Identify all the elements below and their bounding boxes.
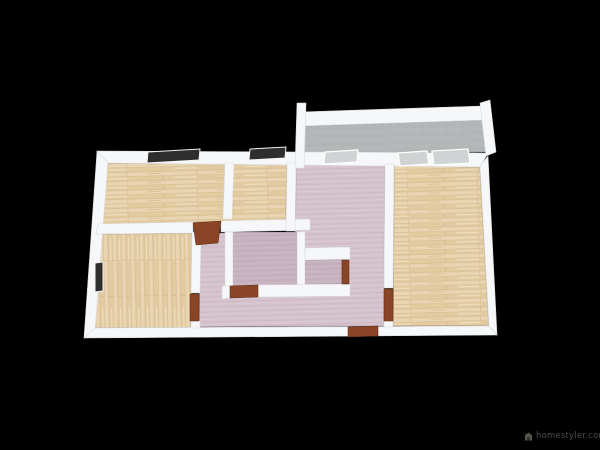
window-top-left-1 (147, 149, 200, 163)
door-entrance (348, 326, 378, 337)
inner-room-west-wall (225, 232, 233, 288)
right-room-west-wall-upper (384, 164, 394, 288)
door-bottom-left-room (190, 294, 199, 321)
floorplan-3d-view (0, 0, 600, 450)
inner-room-south-wall-west (222, 286, 230, 299)
door-alcove (342, 260, 349, 284)
top-rooms-divider-wall (223, 163, 234, 219)
alcove-floor (305, 259, 342, 285)
mid-wall-east (221, 219, 310, 232)
mid-wall-west (96, 222, 193, 234)
room-right-floor (393, 165, 489, 326)
left-room-east-wall-lower (191, 321, 200, 328)
alcove-north-wall (305, 247, 350, 260)
door-inner-room (230, 285, 258, 298)
watermark-text: homestyler.com (536, 430, 600, 443)
window-right-1 (398, 151, 429, 166)
door-hall-north (193, 221, 221, 245)
window-corridor (324, 150, 358, 164)
balcony-left-post (295, 103, 306, 168)
window-top-left-2 (249, 147, 286, 160)
room-top-left-floor (99, 163, 287, 225)
window-left-wall (95, 262, 103, 292)
render-canvas: homestyler.com (0, 0, 600, 450)
watermark: homestyler.com (524, 430, 600, 443)
door-right-room (384, 289, 393, 321)
room-bottom-left-floor (94, 233, 192, 328)
right-room-west-wall-lower (384, 321, 393, 327)
inner-room-east-wall (297, 232, 305, 288)
outer-wall-bottom (84, 326, 497, 338)
inner-room-south-wall-east (258, 284, 350, 297)
inner-room-floor (233, 232, 297, 287)
window-right-2 (432, 149, 470, 165)
homestyler-logo-icon (524, 432, 533, 441)
corridor-west-wall (286, 163, 296, 231)
